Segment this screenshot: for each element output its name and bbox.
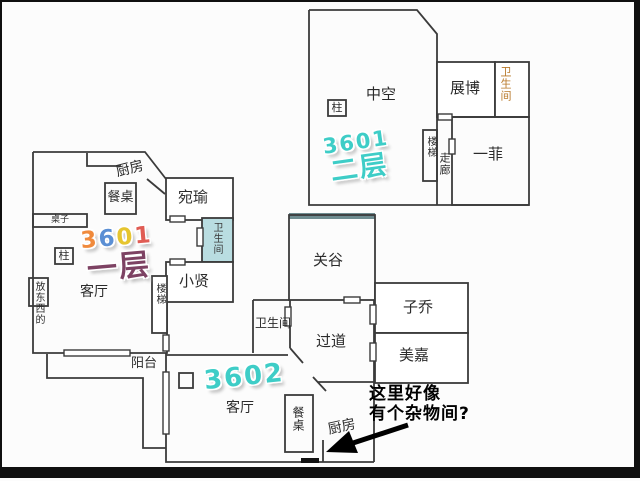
corridor-label-upper: 走廊 [439,152,450,176]
room-label-living-lower: 客厅 [226,401,254,416]
title-3601-floor1-floor: 一层 [82,248,157,287]
annotation-text: 这里好像 有个杂物间? [369,384,470,424]
photo-border-bottom [0,467,640,478]
stairs-label-left: 楼梯 [154,283,164,305]
room-label-guangu: 关谷 [313,252,343,269]
room-label-bathroom-upper: 卫生间 [500,66,511,102]
dining-table-label-left: 餐桌 [105,191,136,205]
stairs-label-upper: 楼梯 [425,136,435,158]
room-label-ziqiao: 子乔 [403,299,433,316]
pillar-label-upper: 柱 [328,102,346,114]
pillar-label-left: 柱 [55,250,73,262]
hallway-label: 过道 [316,333,346,350]
annotation-line2: 有个杂物间? [369,404,470,424]
photo-border-top [0,0,640,2]
title-3601-floor1: 3601 一层 [80,223,157,287]
dining-table-label-lower: 餐桌 [292,406,304,432]
room-label-xiaoxian: 小贤 [179,273,209,290]
floorplan-page: 中空 柱 展博 卫生间 楼梯 走廊 一菲 3601 二层 厨房 餐桌 宛瑜 桌子… [0,0,640,481]
annotation-line1: 这里好像 [369,384,470,404]
photo-border-left [0,0,2,478]
room-label-yifei: 一菲 [473,146,503,163]
photo-border-right [634,0,640,478]
room-label-bathroom-left: 卫生间 [211,222,221,255]
room-label-wanyu: 宛瑜 [178,189,208,206]
room-label-meijia: 美嘉 [399,347,429,364]
storage-label-left: 放东西的 [33,281,43,325]
balcony-label: 阳台 [131,357,157,371]
room-label-zhongkong: 中空 [366,86,396,103]
room-label-bathroom-lower: 卫生间 [255,317,291,330]
table-label-left: 桌子 [33,216,87,226]
storage-door-mark [301,458,319,463]
title-3601-floor2: 3601 二层 [315,126,402,189]
room-label-zhanbo: 展博 [450,80,480,97]
